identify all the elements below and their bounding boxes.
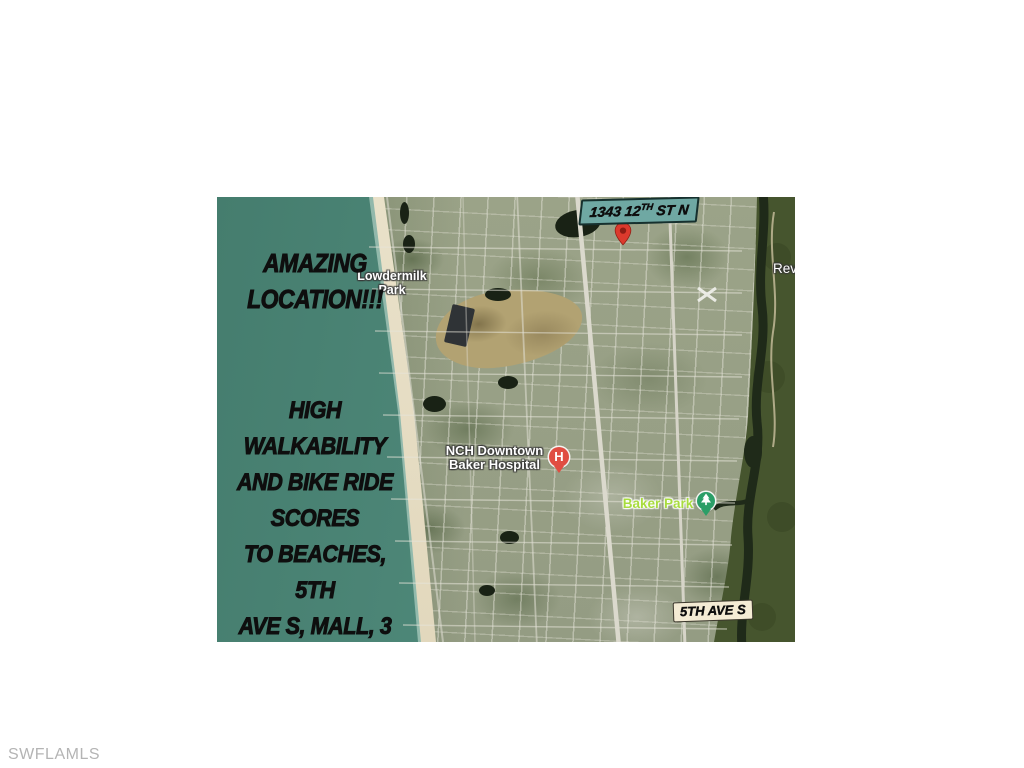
street-tag: 5TH AVE S: [673, 600, 753, 623]
body-line: TO BEACHES, 5TH: [227, 537, 403, 609]
hospital-letter: H: [554, 449, 563, 464]
baker-park-label: Baker Park: [612, 497, 704, 511]
overlay-headline: AMAZING LOCATION!!!: [229, 245, 401, 317]
hospital-line2: Baker Hospital: [432, 458, 557, 472]
overlay-body: HIGH WALKABILITY AND BIKE RIDE SCORES TO…: [227, 393, 403, 642]
body-line: AND BIKE RIDE: [227, 465, 403, 501]
minor-road: [463, 197, 475, 642]
street-grid: [369, 247, 742, 629]
listing-map-image: 1343 12TH ST N Lowdermilk Park NCH Downt…: [217, 197, 795, 642]
minor-road: [517, 197, 537, 642]
x-mark: [698, 288, 716, 301]
headline-line2: LOCATION!!!: [229, 281, 401, 317]
hospital-line1: NCH Downtown: [432, 444, 557, 458]
park-icon: [697, 492, 715, 510]
address-tag: 1343 12TH ST N: [578, 197, 700, 225]
mls-watermark: SWFLAMLS: [8, 746, 100, 764]
hospital-label: NCH Downtown Baker Hospital: [432, 444, 557, 471]
tree-icon: [700, 493, 712, 506]
main-road: [577, 197, 619, 642]
edge-map-label: Revs: [773, 262, 795, 276]
body-line: HIGH WALKABILITY: [227, 393, 403, 465]
address-text: 1343 12: [589, 203, 642, 220]
hospital-icon: H: [549, 447, 569, 467]
address-text-rest: ST N: [652, 201, 690, 218]
body-line: SCORES: [227, 501, 403, 537]
secondary-road: [669, 197, 685, 642]
headline-line1: AMAZING: [229, 245, 401, 281]
body-line: AVE S, MALL, 3: [227, 609, 403, 642]
location-pin-icon: [614, 222, 632, 251]
